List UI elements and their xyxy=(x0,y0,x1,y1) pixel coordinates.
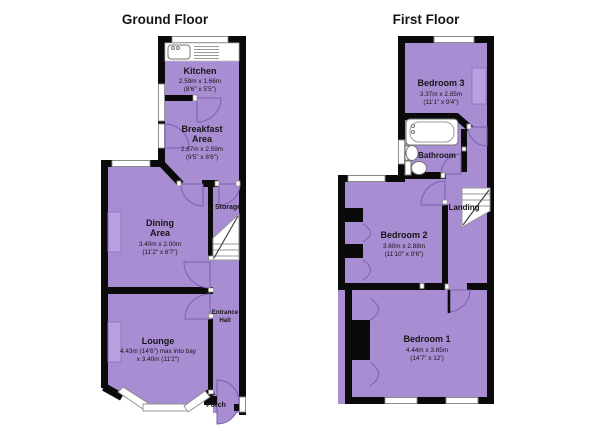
breakfast-side-door xyxy=(159,124,165,148)
chimney-breast xyxy=(345,244,363,258)
bedroom3-wardrobe xyxy=(472,68,486,104)
door-stop xyxy=(236,181,240,186)
bedroom3-label: Bedroom 3 xyxy=(417,78,464,88)
wall xyxy=(487,36,494,404)
bedroom3-dims-imperial: (11'1" x 9'4") xyxy=(423,99,458,106)
door-stop xyxy=(445,284,449,289)
door-stop xyxy=(467,124,471,129)
bedroom1-dims-imperial: (14'7" x 12') xyxy=(410,355,443,362)
kitchen-label: Kitchen xyxy=(183,66,216,76)
wall xyxy=(345,287,352,404)
bay-window-segment xyxy=(143,404,187,411)
bedroom1-dims-metric: 4.44m x 3.65m xyxy=(406,347,448,354)
tap-icon xyxy=(177,47,180,50)
wall xyxy=(338,175,345,287)
door-stop xyxy=(193,95,197,101)
dining-lounge-wall xyxy=(101,287,213,294)
breakfast-dims-metric: 2.87m x 2.59m xyxy=(181,146,223,153)
sink-icon xyxy=(406,146,418,161)
breakfast-label-2: Area xyxy=(192,134,213,144)
wall xyxy=(101,160,108,388)
door-stop xyxy=(209,256,214,260)
floorplan-page: Ground Floor xyxy=(0,0,600,436)
door-stop xyxy=(209,288,214,292)
landing-label: Landing xyxy=(448,203,479,212)
toilet-cistern xyxy=(405,161,411,175)
tap-icon xyxy=(412,125,415,128)
hall-wall xyxy=(208,187,213,260)
door-stop xyxy=(209,390,214,394)
wall xyxy=(239,36,246,397)
porch-label: Porch xyxy=(206,402,226,409)
first-floor-plan: First Floor xyxy=(338,12,494,404)
chimney-breast xyxy=(345,208,363,222)
storage-label: Storage xyxy=(215,204,241,211)
lounge-dims-metric: 4.43m (14'6") max into bay xyxy=(120,348,197,355)
bedroom1-window xyxy=(385,398,417,404)
ground-floor-plan: Ground Floor xyxy=(101,12,246,424)
bedroom1-window xyxy=(446,398,478,404)
bedroom2-window xyxy=(348,176,385,182)
bedroom2-dims-metric: 3.60m x 2.88m xyxy=(383,243,425,250)
bedroom-divider-wall xyxy=(467,283,487,290)
kitchen-counter xyxy=(165,43,239,61)
door-stop xyxy=(420,284,424,289)
bedroom3-dims-metric: 3.37m x 2.85m xyxy=(420,91,462,98)
lounge-dims-imperial: x 3.40m (11'2") xyxy=(137,356,179,363)
tap-icon xyxy=(172,47,175,50)
kitchen-dims-metric: 2.59m x 1.66m xyxy=(179,78,221,85)
door-stop xyxy=(215,181,219,186)
ground-floor-title: Ground Floor xyxy=(122,12,209,27)
door-stop xyxy=(177,181,181,186)
bathroom-window xyxy=(399,140,405,164)
bedroom2-label: Bedroom 2 xyxy=(380,230,427,240)
bedroom-divider-wall xyxy=(345,283,445,290)
lounge-alcove xyxy=(108,322,121,362)
bedroom2-dims-imperial: (11'10" x 9'6") xyxy=(385,251,424,258)
door-stop xyxy=(441,173,445,178)
first-floor-title: First Floor xyxy=(393,12,460,27)
entrance-hall-label-2: Hall xyxy=(219,317,231,324)
porch-window xyxy=(240,397,246,412)
bedroom1-label: Bedroom 1 xyxy=(403,334,450,344)
landing-wall xyxy=(442,205,448,285)
dining-dims-imperial: (11'2" x 6'7") xyxy=(142,249,177,256)
kitchen-divider-wall xyxy=(165,95,197,101)
dining-alcove xyxy=(108,212,121,252)
door-stop xyxy=(443,200,448,204)
kitchen-window xyxy=(172,37,228,43)
wall xyxy=(158,36,165,84)
breakfast-side-window xyxy=(159,84,165,121)
dining-window xyxy=(112,161,150,167)
kitchen-dims-imperial: (8'6" x 5'5") xyxy=(184,86,216,93)
dining-dims-metric: 3.40m x 2.00m xyxy=(139,241,181,248)
dining-label-2: Area xyxy=(150,228,171,238)
door-stop xyxy=(462,147,466,151)
breakfast-dims-imperial: (9'5" x 8'6") xyxy=(186,154,218,161)
bathroom-label: Bathroom xyxy=(418,151,456,160)
breakfast-label: Breakfast xyxy=(181,124,222,134)
tap-icon xyxy=(412,131,415,134)
bedroom3-window xyxy=(434,37,474,43)
lounge-label: Lounge xyxy=(142,336,175,346)
hall-wall xyxy=(208,319,213,393)
floorplan-canvas: Ground Floor xyxy=(0,0,600,436)
wall xyxy=(398,36,405,140)
entrance-hall-label: Entrance xyxy=(212,309,239,316)
dining-label: Dining xyxy=(146,218,174,228)
chimney-breast xyxy=(352,320,370,360)
toilet-icon xyxy=(412,162,427,175)
